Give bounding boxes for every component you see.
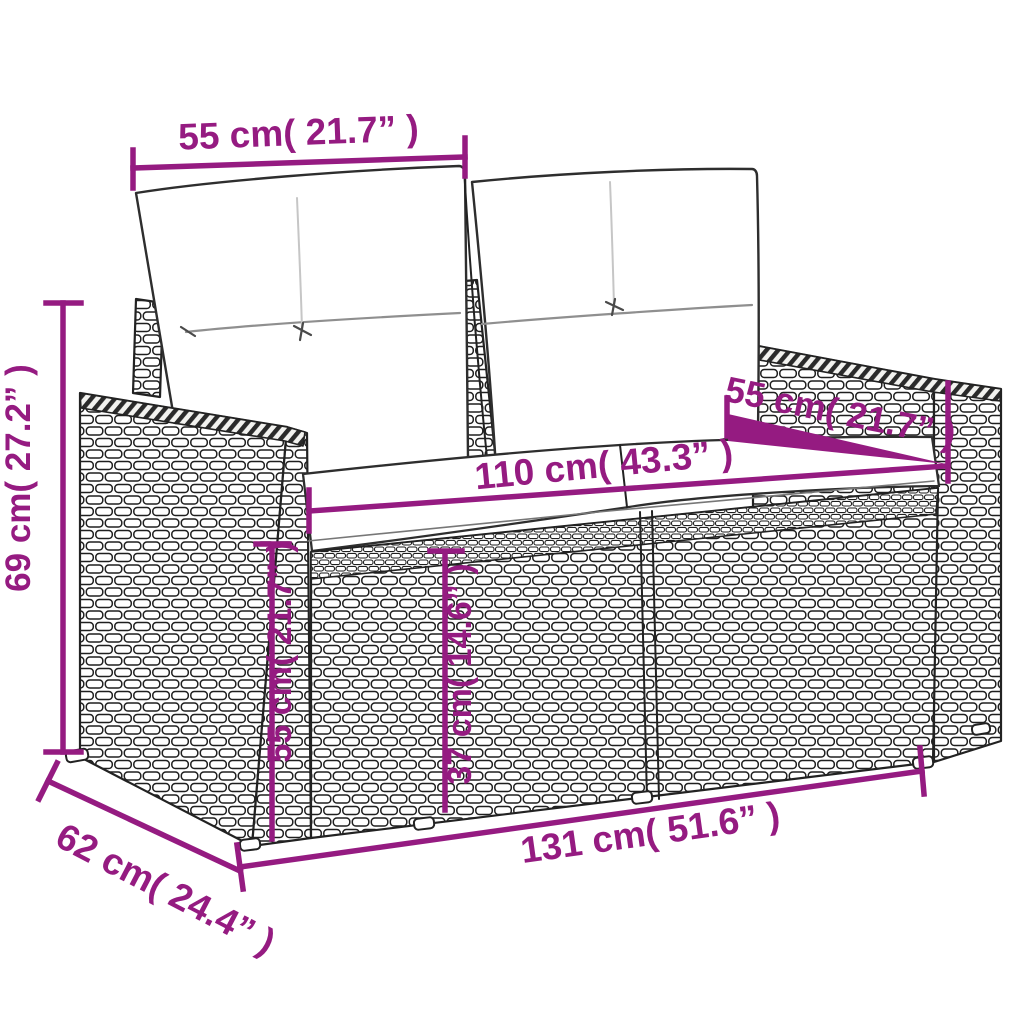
- seat-base-front: [311, 488, 938, 838]
- product-dimension-diagram: 55 cm( 21.7” ) 69 cm( 27.2” ) 110 cm( 43…: [0, 0, 1024, 1024]
- dimension-label-armrest-height: 55 cm( 21.7” ): [261, 541, 299, 762]
- dimension-label-total-height: 69 cm( 27.2” ): [0, 364, 38, 592]
- dimension-total-height: 69 cm( 27.2” ): [0, 303, 81, 752]
- dimension-label-back-cushion-width: 55 cm( 21.7” ): [178, 107, 420, 157]
- back-cushion-right: [472, 169, 759, 469]
- sofa-dimension-drawing: 55 cm( 21.7” ) 69 cm( 27.2” ) 110 cm( 43…: [0, 0, 1024, 1024]
- dimension-label-seat-height: 37 cm( 14.6” ): [441, 563, 479, 784]
